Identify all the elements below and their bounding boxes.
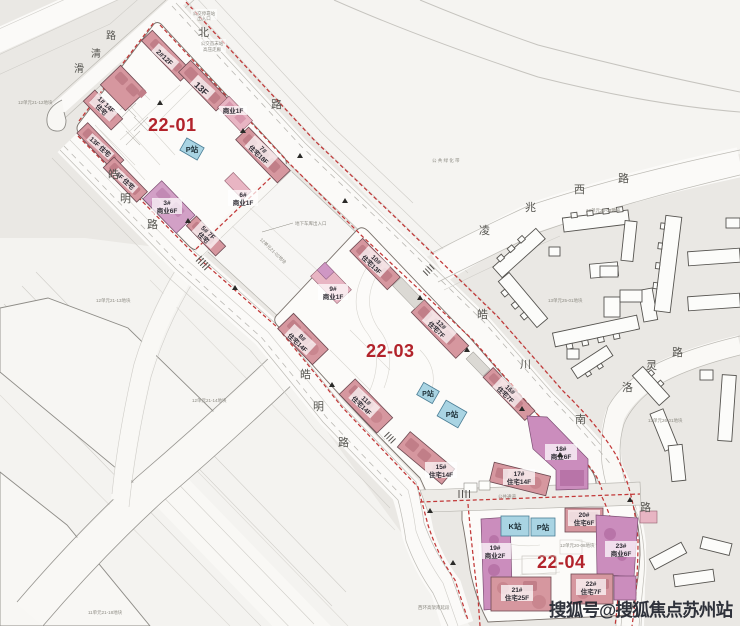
svg-text:13单元26-01地块: 13单元26-01地块 (586, 207, 621, 214)
svg-text:18#: 18# (556, 446, 567, 453)
svg-text:22-04: 22-04 (537, 552, 586, 572)
svg-text:商业1F: 商业1F (323, 292, 344, 301)
svg-text:路: 路 (672, 346, 683, 359)
svg-text:19#: 19# (490, 545, 501, 552)
svg-text:20#: 20# (579, 512, 590, 519)
svg-text:22-03: 22-03 (366, 341, 415, 361)
svg-text:15#: 15# (436, 464, 447, 471)
svg-text:P站: P站 (422, 389, 434, 398)
svg-text:13单元26-01地块: 13单元26-01地块 (648, 417, 683, 424)
svg-text:搜狐号@搜狐焦点苏州站: 搜狐号@搜狐焦点苏州站 (549, 600, 734, 620)
svg-text:商业1F: 商业1F (223, 106, 244, 115)
svg-text:6#: 6# (239, 192, 247, 199)
svg-text:12单元20-08地块: 12单元20-08地块 (560, 542, 595, 549)
svg-text:兆: 兆 (525, 201, 536, 214)
svg-text:南: 南 (575, 413, 586, 426)
svg-text:皓: 皓 (477, 308, 488, 321)
svg-text:商业6F: 商业6F (157, 206, 178, 215)
svg-text:凌: 凌 (479, 223, 490, 237)
svg-text:皓: 皓 (108, 168, 119, 181)
svg-text:13单元25-01地块: 13单元25-01地块 (548, 297, 583, 304)
svg-text:12单元21-12地块: 12单元21-12地块 (18, 99, 53, 106)
svg-text:路: 路 (640, 501, 651, 514)
svg-text:17#: 17# (514, 471, 525, 478)
svg-text:出入口: 出入口 (197, 15, 211, 22)
svg-text:西环高架南延段: 西环高架南延段 (418, 604, 450, 611)
svg-text:明: 明 (313, 400, 324, 413)
svg-text:K站: K站 (509, 521, 522, 531)
svg-text:住宅6F: 住宅6F (574, 518, 595, 527)
svg-text:清: 清 (91, 47, 101, 60)
svg-text:12单元21-14地块: 12单元21-14地块 (192, 397, 227, 404)
svg-text:住宅14F: 住宅14F (429, 470, 453, 479)
svg-text:9#: 9# (329, 286, 337, 293)
svg-text:皓: 皓 (300, 368, 311, 381)
svg-text:路: 路 (271, 98, 282, 111)
svg-text:23#: 23# (616, 543, 627, 550)
svg-text:P站: P站 (537, 522, 550, 532)
svg-text:川: 川 (520, 359, 531, 371)
svg-text:商业1F: 商业1F (233, 198, 254, 207)
svg-text:商业2F: 商业2F (485, 551, 506, 560)
svg-text:滑: 滑 (74, 63, 84, 75)
svg-text:公共通道: 公共通道 (498, 493, 516, 500)
svg-text:路: 路 (106, 29, 116, 42)
svg-text:路: 路 (147, 218, 158, 231)
svg-text:公交首末站: 公交首末站 (201, 40, 224, 47)
svg-text:11单元21-18地块: 11单元21-18地块 (88, 609, 123, 616)
svg-text:12单元21-13地块: 12单元21-13地块 (96, 297, 131, 304)
svg-text:路: 路 (618, 172, 629, 185)
svg-text:洛: 洛 (622, 380, 633, 394)
svg-text:22#: 22# (586, 581, 597, 588)
svg-text:北: 北 (198, 26, 209, 39)
svg-text:P站: P站 (446, 409, 459, 419)
svg-text:3#: 3# (163, 200, 171, 207)
svg-text:住宅7F: 住宅7F (581, 587, 602, 596)
svg-text:P站: P站 (186, 144, 199, 154)
svg-text:路: 路 (338, 436, 349, 449)
svg-text:西: 西 (574, 184, 585, 196)
svg-text:公 共 绿 化 带: 公 共 绿 化 带 (432, 157, 460, 164)
svg-text:住宅25F: 住宅25F (505, 593, 529, 602)
svg-text:22-01: 22-01 (148, 115, 197, 135)
svg-text:明: 明 (120, 192, 131, 205)
svg-text:21#: 21# (512, 587, 523, 594)
svg-text:商业6F: 商业6F (611, 549, 632, 558)
svg-text:地下车库出入口: 地下车库出入口 (295, 220, 327, 227)
svg-text:高压走廊: 高压走廊 (203, 46, 221, 53)
svg-text:住宅14F: 住宅14F (507, 477, 531, 486)
